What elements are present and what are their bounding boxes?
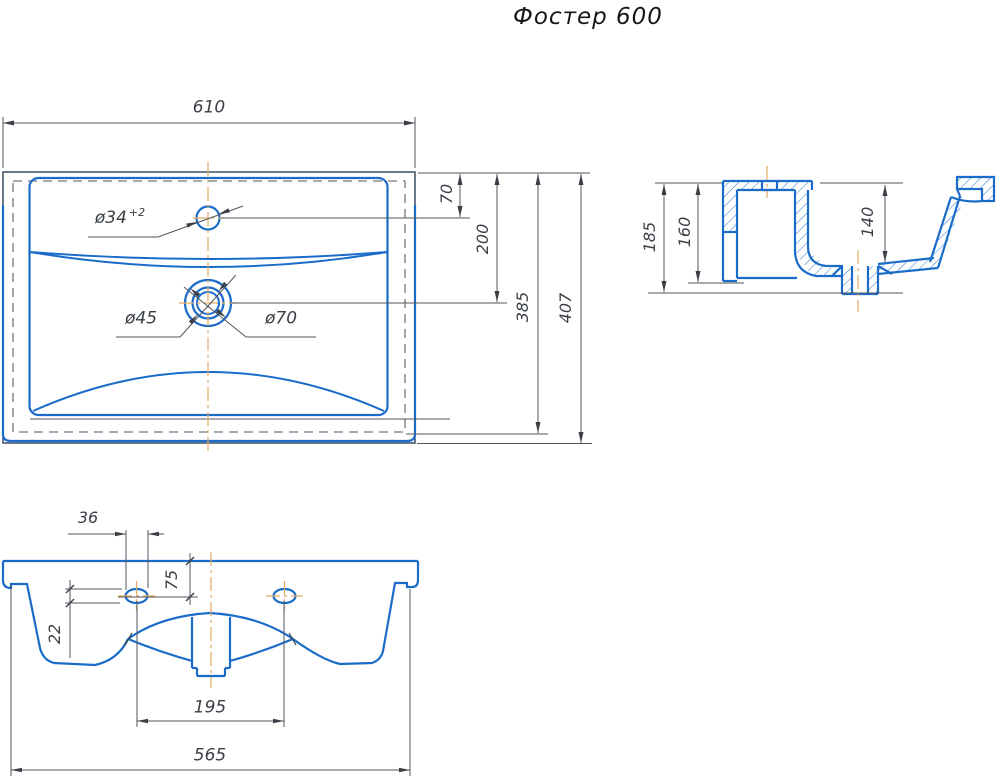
dim-hole-offset-top: 75 xyxy=(164,570,180,590)
dim-faucet-offset: 70 xyxy=(439,184,455,204)
label-drain-inner-diameter: ø45 xyxy=(125,311,157,328)
label-faucet-hole-diameter: ø34+2 xyxy=(95,207,145,227)
top-view-linework xyxy=(3,117,592,452)
dim-slot-spacing: 195 xyxy=(194,700,226,717)
dim-overall-width: 610 xyxy=(193,100,225,117)
dim-total-height: 185 xyxy=(642,222,658,253)
drawing-title: Фостер 600 xyxy=(513,4,663,30)
dimensions-top-view xyxy=(3,117,592,444)
faucet-tolerance: +2 xyxy=(129,206,145,219)
dim-drain-offset: 200 xyxy=(475,224,491,255)
arrowheads-side-view xyxy=(662,184,888,292)
centerlines-front-view xyxy=(118,552,303,688)
label-drain-outer-diameter: ø70 xyxy=(265,311,297,328)
dim-back-height: 160 xyxy=(677,217,693,248)
dim-bowl-depth: 140 xyxy=(860,207,876,238)
arrowheads-top-view xyxy=(3,121,584,444)
drawing-sheet: Фостер 600 610 70 200 385 407 ø34+2 ø45 … xyxy=(0,0,1000,780)
side-view-linework xyxy=(648,166,994,312)
drawing-canvas xyxy=(0,0,1000,780)
dim-bottom-width: 565 xyxy=(194,748,226,765)
dim-basin-depth: 385 xyxy=(515,292,531,323)
dim-slot-width: 36 xyxy=(78,510,98,526)
dim-total-depth: 407 xyxy=(558,293,574,324)
front-view-linework xyxy=(3,530,418,776)
dim-slot-height: 22 xyxy=(47,624,63,644)
